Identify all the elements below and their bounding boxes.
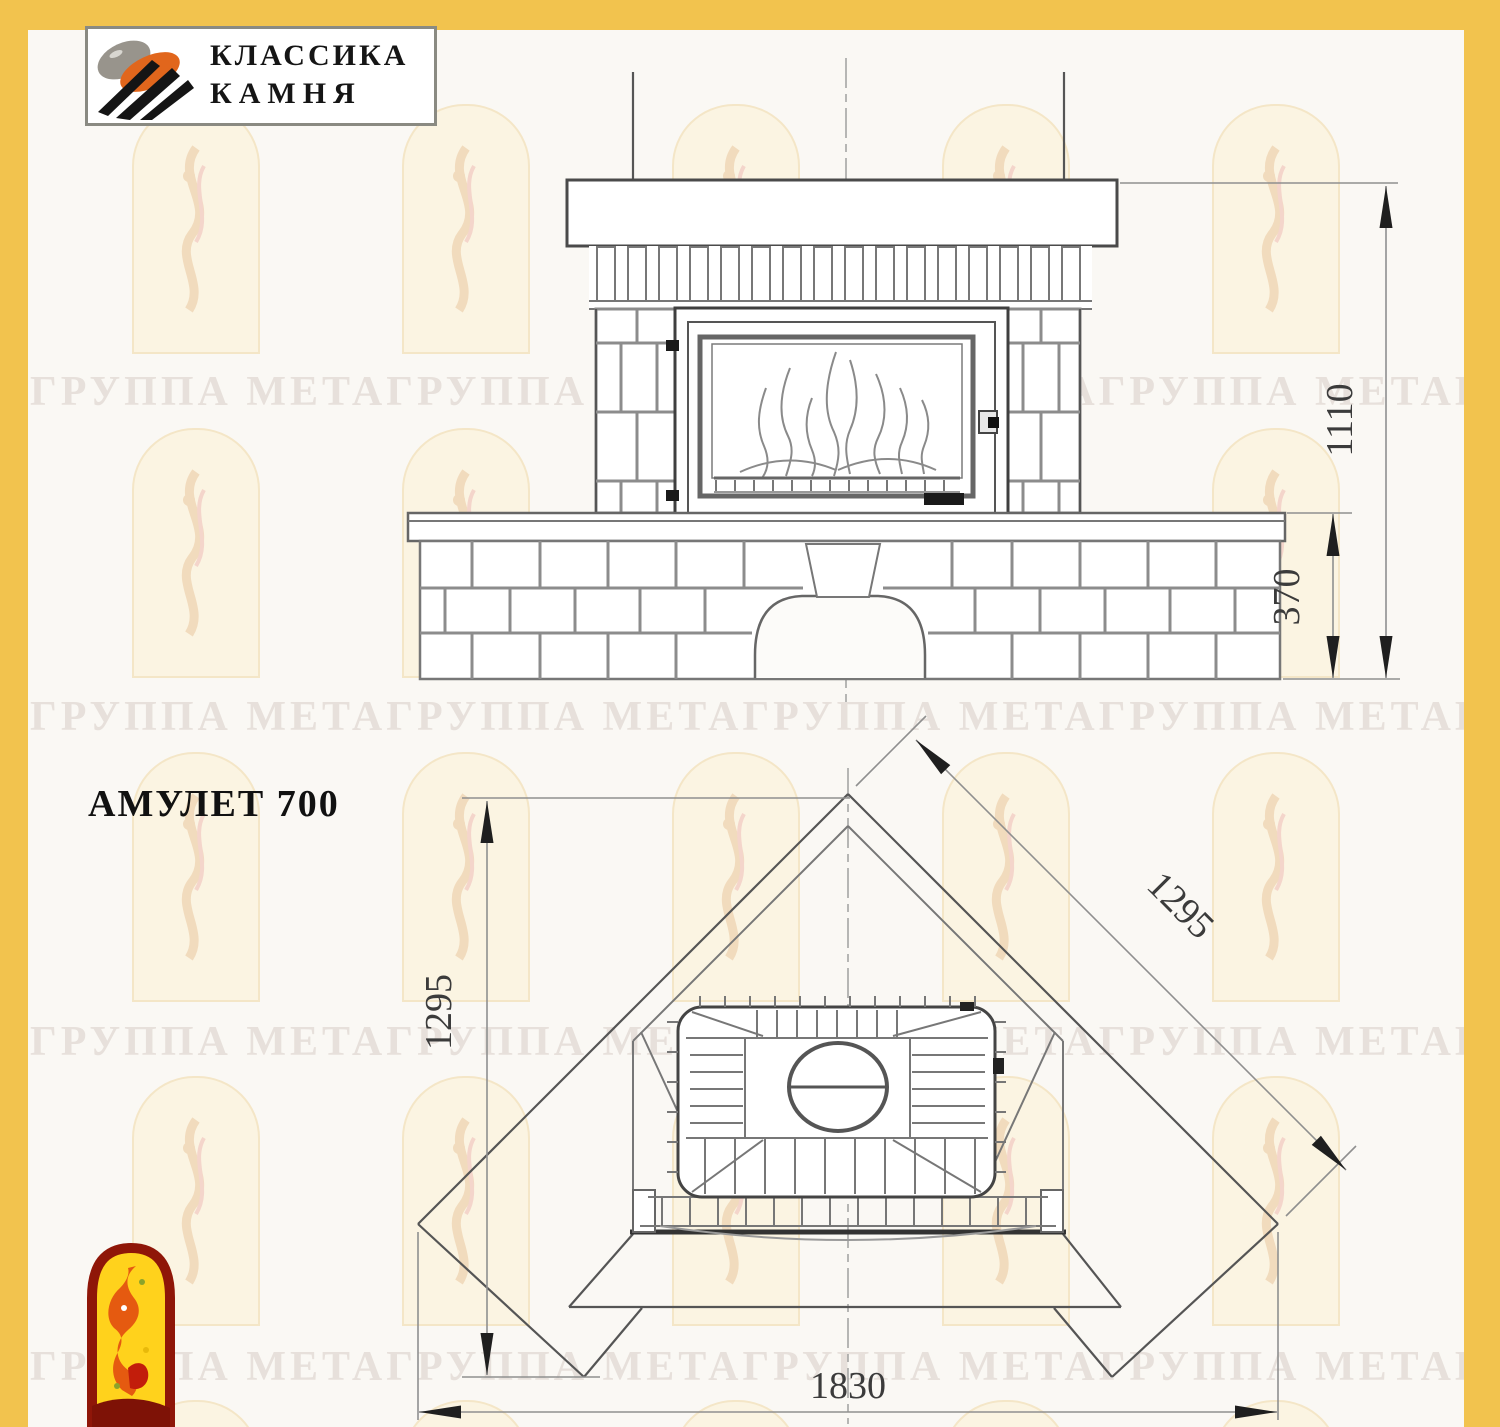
hinge-icon	[666, 340, 679, 351]
latch-icon	[960, 1002, 974, 1011]
hinge-icon	[666, 490, 679, 501]
model-title: АМУЛЕТ 700	[88, 782, 340, 826]
scanned-drawing-page: ГРУППА МЕТАГРУППА МЕТАГРУППА МЕТАГРУППА …	[0, 0, 1500, 1427]
firebox-plan	[667, 996, 1006, 1197]
latch-icon	[993, 1058, 1004, 1074]
page-border-left	[0, 0, 28, 1427]
dimension-arrowhead-icon	[1327, 514, 1340, 556]
dimension-arrowhead-icon	[1235, 1406, 1277, 1419]
dimension-arrowhead-icon	[419, 1406, 461, 1419]
trim-band-slats	[662, 1197, 1026, 1226]
dim-base-height: 370	[1266, 569, 1308, 626]
company-logo-text: КЛАССИКА КАМНЯ	[210, 37, 408, 112]
dim-height-total: 1110	[1319, 383, 1361, 456]
stone-logo-icon	[94, 32, 206, 120]
door-handle-icon	[988, 417, 999, 428]
dimension-arrowhead-icon	[916, 740, 950, 774]
dimension-arrowhead-icon	[481, 1333, 494, 1375]
keystone	[806, 544, 880, 597]
company-name-line2: КАМНЯ	[210, 75, 408, 113]
dim-front-width: 1830	[810, 1365, 886, 1407]
firebox-insert	[666, 308, 1008, 538]
page-border-right	[1464, 0, 1500, 1427]
technical-drawing: 1110 370 1295 1295 1830	[0, 0, 1500, 1427]
mantel-shelf	[567, 180, 1117, 246]
hearth-shelf	[408, 513, 1285, 541]
front-elevation-view	[408, 58, 1285, 706]
wood-niche-fill	[755, 596, 925, 678]
dimension-arrowhead-icon	[1380, 636, 1393, 678]
company-name-line1: КЛАССИКА	[210, 37, 408, 75]
dimension-arrowhead-icon	[1327, 636, 1340, 678]
dimension-arrowhead-icon	[1380, 186, 1393, 228]
corner-plan-view	[418, 768, 1278, 1424]
damper-lever-icon	[924, 493, 964, 505]
dimension-arrowhead-icon	[1312, 1136, 1346, 1170]
company-logo: КЛАССИКА КАМНЯ	[85, 26, 437, 126]
dim-side-right: 1295	[1139, 864, 1222, 947]
dimension-arrowhead-icon	[481, 801, 494, 843]
dim-side-left: 1295	[418, 974, 460, 1050]
firebird-logo-icon	[84, 1238, 178, 1427]
